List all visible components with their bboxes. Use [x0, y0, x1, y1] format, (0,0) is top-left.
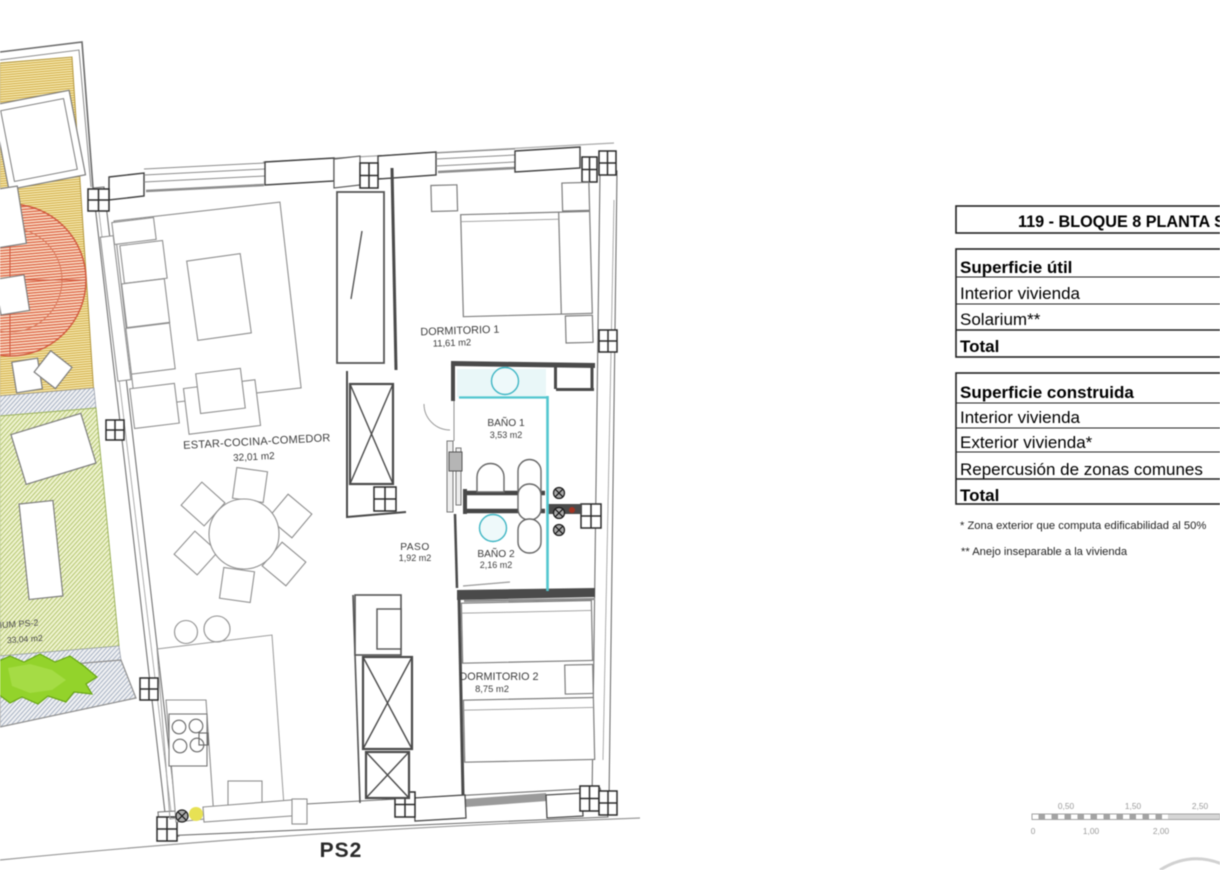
- svg-text:0: 0: [1031, 826, 1036, 836]
- svg-text:2,16 m2: 2,16 m2: [480, 560, 513, 570]
- svg-text:1,50: 1,50: [1125, 801, 1142, 811]
- svg-text:Repercusión de zonas comunes: Repercusión de zonas comunes: [960, 460, 1203, 479]
- svg-text:32,01 m2: 32,01 m2: [233, 451, 276, 464]
- svg-text:Total: Total: [960, 486, 999, 505]
- svg-text:Interior vivienda: Interior vivienda: [960, 408, 1081, 427]
- svg-text:* Zona exterior que computa ed: * Zona exterior que computa edificabilid…: [960, 520, 1206, 532]
- svg-text:Total: Total: [960, 337, 999, 356]
- svg-text:1,00: 1,00: [1083, 826, 1100, 836]
- svg-text:PS2: PS2: [320, 839, 363, 862]
- svg-text:DORMITORIO 2: DORMITORIO 2: [460, 671, 539, 683]
- svg-text:1,92 m2: 1,92 m2: [399, 553, 432, 563]
- svg-text:Solarium**: Solarium**: [960, 310, 1041, 329]
- svg-text:11,61 m2: 11,61 m2: [433, 336, 472, 348]
- svg-text:** Anejo inseparable a la vivi: ** Anejo inseparable a la vivienda: [961, 546, 1128, 558]
- svg-text:119 - BLOQUE 8 PLANTA SEGUNDA: 119 - BLOQUE 8 PLANTA SEGUNDA: [1018, 213, 1220, 231]
- svg-text:2,00: 2,00: [1153, 826, 1170, 836]
- svg-text:0,50: 0,50: [1058, 801, 1075, 811]
- svg-text:Exterior vivienda*: Exterior vivienda*: [960, 433, 1093, 452]
- svg-text:Superficie útil: Superficie útil: [960, 258, 1072, 277]
- svg-text:BAÑO 1: BAÑO 1: [487, 416, 525, 429]
- svg-text:3,53 m2: 3,53 m2: [490, 430, 523, 440]
- svg-text:2,50: 2,50: [1192, 801, 1209, 811]
- svg-text:BAÑO 2: BAÑO 2: [477, 547, 515, 560]
- svg-text:PASO: PASO: [400, 542, 430, 553]
- svg-text:Interior vivienda: Interior vivienda: [960, 284, 1081, 303]
- svg-text:8,75 m2: 8,75 m2: [475, 683, 509, 694]
- svg-text:Superficie construida: Superficie construida: [960, 383, 1134, 402]
- svg-text:ESTAR-COCINA-COMEDOR: ESTAR-COCINA-COMEDOR: [183, 432, 331, 452]
